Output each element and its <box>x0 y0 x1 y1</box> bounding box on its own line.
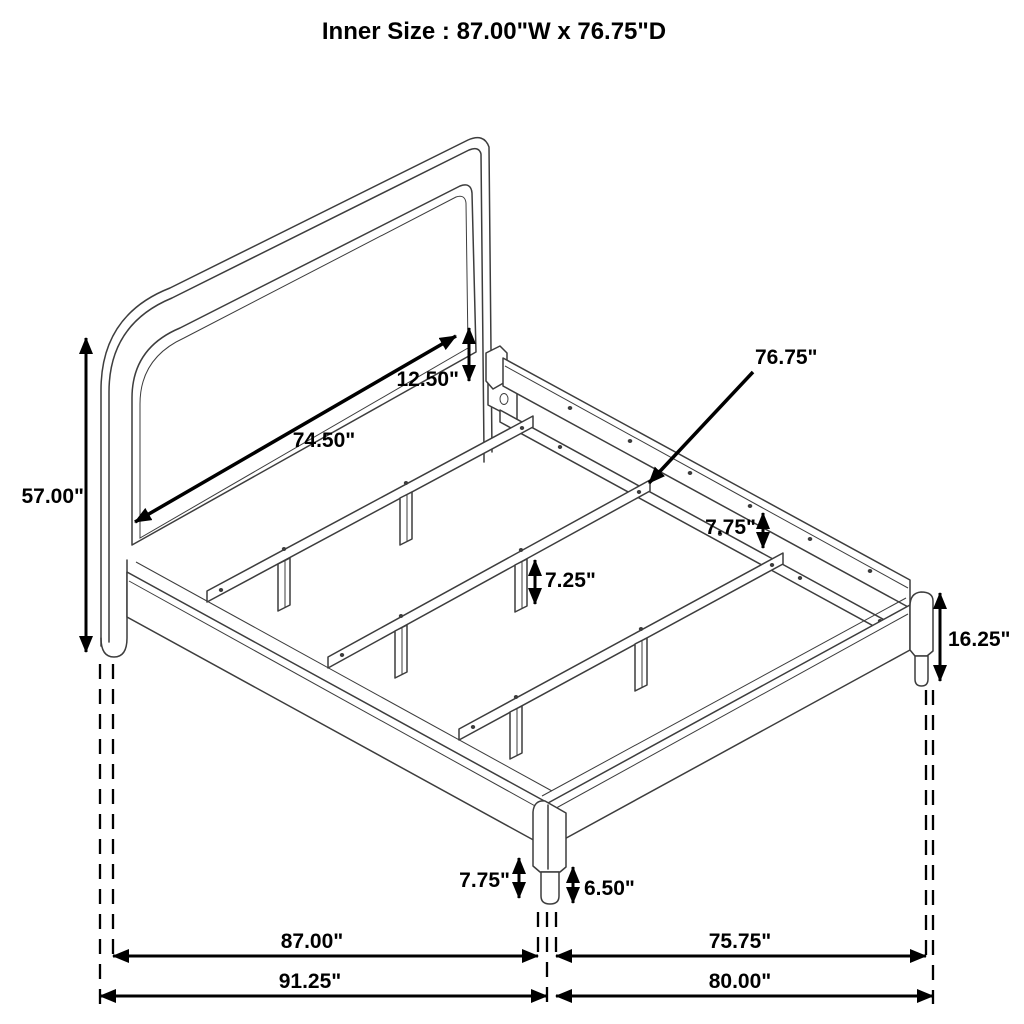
dim-label-front-leg-height: 6.50" <box>584 877 635 900</box>
headboard <box>101 138 517 657</box>
dim-headboard-height: 57.00" <box>21 338 86 652</box>
dim-label-headboard-height: 57.00" <box>21 485 84 508</box>
bed-dimension-diagram: Inner Size : 87.00"W x 76.75"D <box>0 0 1024 1024</box>
dim-label-side-rail-height: 7.75" <box>459 869 510 892</box>
dim-label-inner-depth: 75.75" <box>709 930 772 953</box>
foot-rail <box>542 598 910 848</box>
dim-inner-width: 87.00" <box>113 930 538 956</box>
front-rail-ledge <box>136 562 552 791</box>
slat-leg <box>400 492 412 545</box>
dim-label-slat-leg-height: 7.25" <box>545 569 596 592</box>
rear-corner-post <box>910 592 933 686</box>
front-rail-chamfer <box>129 581 546 812</box>
front-rail-face <box>127 572 548 848</box>
dim-slat-leg-height: 7.25" <box>535 560 596 604</box>
foot-rail-chamfer <box>549 614 908 812</box>
diagram-title: Inner Size : 87.00"W x 76.75"D <box>322 18 666 45</box>
dim-label-footboard-height: 16.25" <box>948 628 1011 651</box>
dim-overall-width: 91.25" <box>100 970 547 996</box>
dim-label-overall-width: 91.25" <box>279 970 342 993</box>
foot-rail-face <box>548 605 910 848</box>
slat-leg <box>395 625 407 678</box>
dim-side-rail-height: 7.75" <box>459 858 519 898</box>
dim-label-rail-to-slat-drop: 7.75" <box>705 516 756 539</box>
dim-inner-depth: 75.75" <box>556 930 926 956</box>
dim-front-leg-height: 6.50" <box>573 867 635 903</box>
slat-leg <box>635 638 647 691</box>
slat-leg <box>510 706 522 759</box>
front-post-leg <box>541 872 559 904</box>
dim-overall-depth: 80.00" <box>556 970 933 996</box>
dim-label-panel-width: 74.50" <box>293 429 356 452</box>
dim-label-inner-depth-pointer: 76.75" <box>755 346 818 369</box>
dim-label-inner-width: 87.00" <box>281 930 344 953</box>
dim-footboard-height: 16.25" <box>940 593 1011 681</box>
rear-rail-chamfer <box>505 366 908 588</box>
slat-leg <box>278 558 290 611</box>
dim-label-overall-depth: 80.00" <box>709 970 772 993</box>
dim-label-panel-height: 12.50" <box>396 368 459 391</box>
slat-leg <box>515 559 527 612</box>
rear-post-foot <box>915 656 928 686</box>
front-corner-post <box>533 801 566 904</box>
foot-rail-ledge <box>542 598 906 796</box>
diagram-canvas: Inner Size : 87.00"W x 76.75"D <box>0 0 1024 1024</box>
